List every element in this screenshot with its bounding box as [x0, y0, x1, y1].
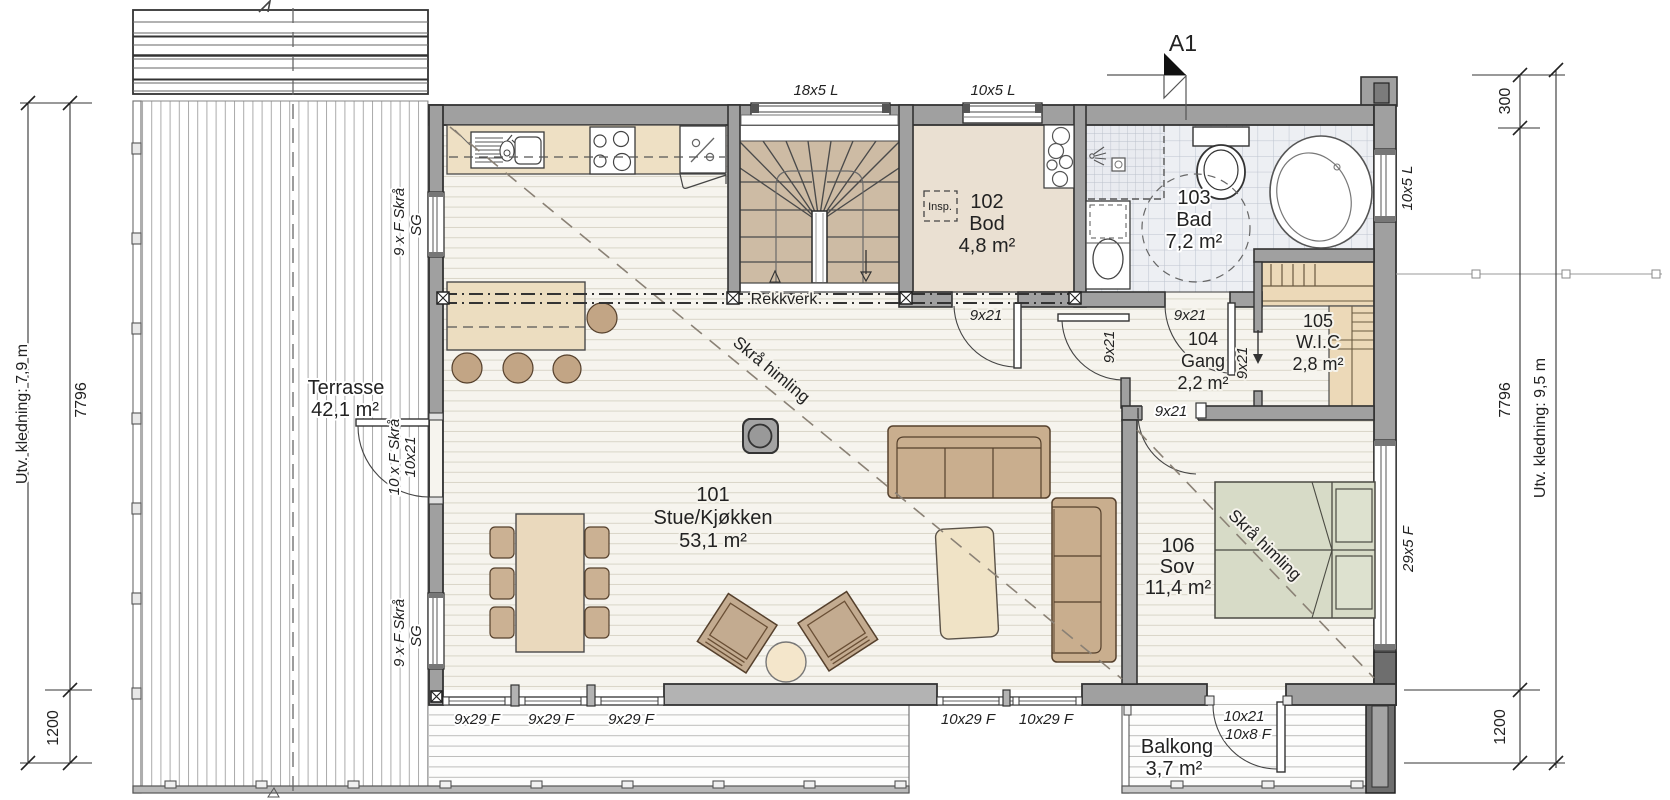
svg-text:Utv. kledning: 7,9 m: Utv. kledning: 7,9 m	[14, 344, 31, 484]
svg-text:9x21: 9x21	[1101, 331, 1118, 364]
svg-text:9x29 F: 9x29 F	[608, 711, 655, 728]
svg-text:29x5 F: 29x5 F	[1400, 525, 1417, 573]
svg-text:105: 105	[1303, 311, 1333, 331]
svg-text:300: 300	[1497, 88, 1514, 115]
svg-text:10x5 L: 10x5 L	[1399, 165, 1416, 210]
svg-text:9 x F Skrå: 9 x F Skrå	[391, 599, 408, 667]
svg-text:2,8 m²: 2,8 m²	[1292, 354, 1343, 374]
svg-text:104: 104	[1188, 329, 1218, 349]
svg-text:1200: 1200	[1492, 709, 1509, 745]
svg-text:9x21: 9x21	[1234, 347, 1251, 380]
svg-text:103: 103	[1177, 187, 1210, 209]
svg-text:10x21: 10x21	[402, 437, 419, 478]
svg-text:Gang: Gang	[1181, 351, 1225, 371]
svg-text:106: 106	[1161, 535, 1194, 557]
svg-text:2,2 m²: 2,2 m²	[1177, 373, 1228, 393]
svg-text:9x21: 9x21	[970, 307, 1003, 324]
svg-text:101: 101	[696, 484, 729, 506]
svg-text:7796: 7796	[73, 382, 90, 418]
svg-text:42,1 m²: 42,1 m²	[311, 399, 379, 421]
svg-text:Utv. kledning: 9,5 m: Utv. kledning: 9,5 m	[1532, 358, 1549, 498]
svg-text:10x5 L: 10x5 L	[970, 82, 1015, 99]
svg-text:10x21: 10x21	[1224, 708, 1265, 725]
svg-text:9x21: 9x21	[1155, 403, 1188, 420]
svg-text:SG: SG	[408, 625, 425, 647]
svg-text:Balkong: Balkong	[1141, 736, 1213, 758]
svg-text:10 x F Skrå: 10 x F Skrå	[386, 419, 403, 495]
svg-text:Rekkverk: Rekkverk	[751, 291, 819, 308]
svg-text:Terrasse: Terrasse	[308, 377, 385, 399]
svg-text:Sov: Sov	[1160, 556, 1194, 578]
svg-text:Bad: Bad	[1176, 209, 1212, 231]
svg-text:9x29 F: 9x29 F	[528, 711, 575, 728]
svg-text:53,1 m²: 53,1 m²	[679, 530, 747, 552]
svg-text:W.I.C: W.I.C	[1296, 332, 1340, 352]
svg-text:Bod: Bod	[969, 213, 1005, 235]
svg-text:1200: 1200	[45, 710, 62, 746]
svg-text:9x29 F: 9x29 F	[454, 711, 501, 728]
svg-text:10x8 F: 10x8 F	[1225, 726, 1272, 743]
svg-text:11,4 m²: 11,4 m²	[1145, 577, 1212, 599]
svg-text:7,2 m²: 7,2 m²	[1166, 231, 1223, 253]
svg-text:Stue/Kjøkken: Stue/Kjøkken	[654, 507, 773, 529]
svg-text:9x21: 9x21	[1174, 307, 1207, 324]
svg-text:Insp.: Insp.	[928, 201, 952, 213]
svg-text:A1: A1	[1169, 30, 1197, 56]
svg-text:4,8 m²: 4,8 m²	[959, 235, 1016, 257]
svg-text:SG: SG	[408, 214, 425, 236]
svg-text:10x29 F: 10x29 F	[941, 711, 996, 728]
svg-text:18x5 L: 18x5 L	[793, 82, 838, 99]
svg-text:10x29 F: 10x29 F	[1019, 711, 1074, 728]
svg-text:3,7 m²: 3,7 m²	[1146, 758, 1203, 780]
svg-text:9 x F Skrå: 9 x F Skrå	[391, 188, 408, 256]
svg-text:102: 102	[970, 191, 1003, 213]
svg-text:7796: 7796	[1497, 382, 1514, 418]
